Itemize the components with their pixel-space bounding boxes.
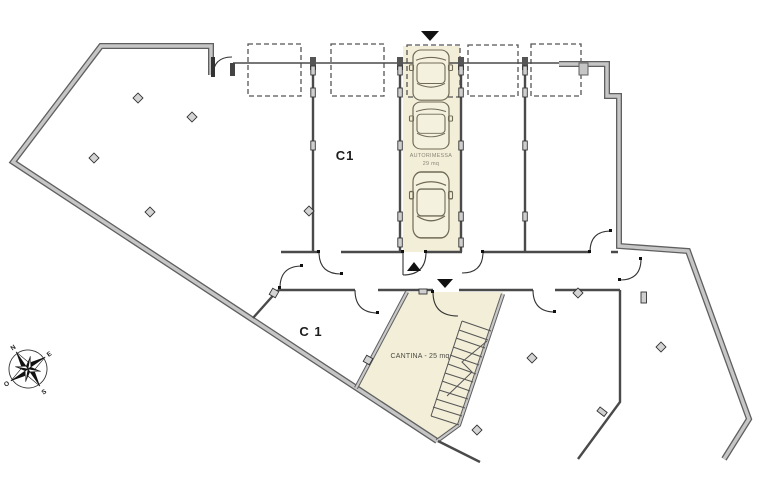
entry-arrow-down-icon	[421, 31, 439, 41]
car-icon	[410, 172, 453, 238]
path-arrow-up-icon	[407, 262, 421, 271]
path-arrow-down-icon	[437, 279, 453, 288]
autorimessa-area-label: 29 mq	[423, 161, 439, 167]
car-icon	[410, 50, 453, 100]
parking-space-outline	[531, 44, 581, 96]
cantina-label: CANTINA - 25 mq	[390, 353, 449, 360]
parking-space-outline	[468, 45, 518, 96]
wall-notch	[579, 63, 588, 75]
cellar-unit-label: C 1	[299, 324, 322, 339]
door-jamb-post	[230, 63, 235, 76]
compass-north-label: N	[9, 344, 17, 353]
floor-plan-page: N E S O C1 C 1 AUTORIMESSA 29 mq CANTINA…	[0, 0, 764, 492]
compass-east-label: E	[46, 350, 54, 359]
compass-south-label: S	[41, 388, 49, 397]
compass-west-label: O	[3, 380, 11, 389]
floor-plan-svg: N E S O C1 C 1 AUTORIMESSA 29 mq CANTINA…	[0, 0, 764, 492]
parking-space-outline	[331, 44, 384, 96]
autorimessa-label: AUTORIMESSA	[410, 153, 453, 159]
car-icon	[410, 102, 453, 149]
parking-space-outline	[248, 44, 301, 96]
compass-rose-icon: N E S O	[0, 329, 70, 412]
cantina-highlight	[356, 292, 503, 443]
garage-unit-label: C1	[336, 148, 355, 163]
cars	[410, 50, 453, 238]
